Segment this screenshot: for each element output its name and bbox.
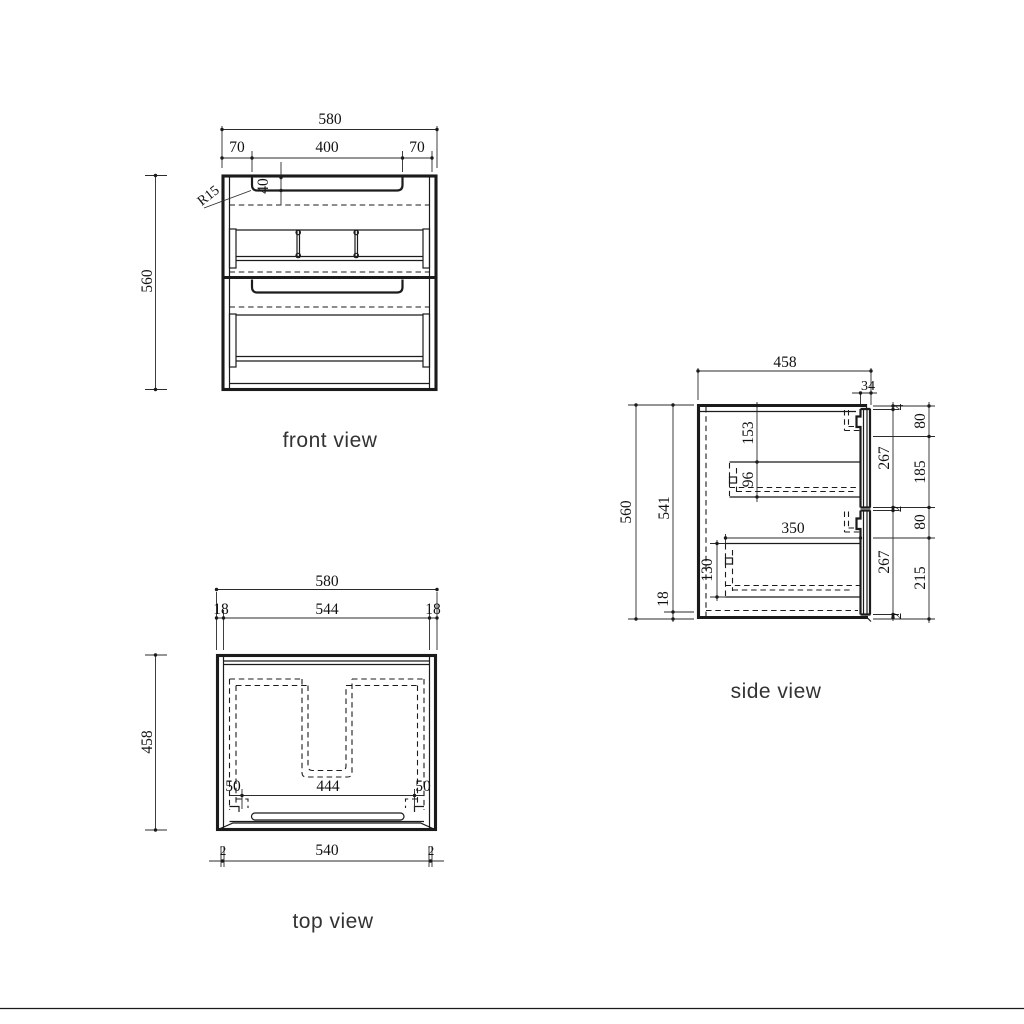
side-upper-slide-end: [730, 477, 737, 483]
front-upper-handle-recess: [252, 178, 403, 191]
technical-drawing: 580 70 400 70 560 R15 40 front view: [0, 0, 1024, 1024]
side-lower-box-solid: [726, 544, 861, 598]
dim-side-top-gap: 4: [891, 403, 906, 410]
dim-front-recess-right: 70: [409, 139, 425, 156]
dim-side-lower-box-height: 130: [699, 558, 716, 582]
front-dimension-lines: [156, 130, 438, 390]
side-carcass-outline: [697, 404, 868, 619]
side-view-label: side view: [731, 680, 822, 703]
dim-side-upper-box-height: 96: [740, 472, 757, 488]
side-view: 458 34 560 541 18 153 96 350 130 4 267 2…: [618, 354, 935, 703]
dim-side-lower-box-depth: 350: [781, 520, 805, 537]
dim-top-gap-right: 2: [428, 843, 435, 858]
top-plumbing-cutout-outer: [302, 679, 352, 777]
dim-side-top-offset: 153: [740, 421, 757, 445]
front-view-label: front view: [283, 429, 378, 452]
side-view-structure: [697, 404, 871, 622]
side-view-dimensions: 458 34 560 541 18 153 96 350 130 4 267 2…: [618, 354, 935, 623]
top-view-structure: [218, 656, 436, 830]
dim-top-inner-width: 544: [315, 601, 339, 618]
side-back-bottom-hidden: [706, 407, 858, 616]
front-lower-handle-recess: [252, 280, 403, 293]
dim-side-right-offset-4: 215: [912, 566, 929, 590]
top-cabinet-outline: [218, 656, 436, 830]
dim-side-right-offset-1: 80: [912, 413, 929, 429]
dim-top-overall-depth: 458: [139, 730, 156, 754]
front-lower-left-runner: [230, 314, 237, 367]
front-view: 580 70 400 70 560 R15 40 front view: [139, 111, 439, 452]
dim-side-overall-depth: 458: [773, 354, 797, 371]
dim-front-corner-radius: R15: [195, 183, 223, 209]
top-drawer-hidden-back: [230, 679, 425, 686]
dim-side-bottom-panel: 18: [655, 591, 672, 607]
top-runner-steps: [230, 807, 425, 813]
front-lower-drawer-rails: [236, 315, 423, 361]
dim-top-side-right: 18: [425, 601, 441, 618]
top-extension-lines: [145, 592, 437, 867]
top-view: 580 18 544 18 458 50 444 50 2 540 2 top …: [139, 573, 444, 933]
front-view-dimensions: 580 70 400 70 560 R15 40: [139, 111, 439, 391]
front-view-structure: [223, 176, 436, 390]
front-extension-lines: [145, 126, 437, 390]
dim-side-carcass-height: 541: [656, 496, 673, 519]
top-hidden-steps: [236, 799, 418, 808]
drawing-sheet: 580 70 400 70 560 R15 40 front view: [0, 0, 1024, 1024]
dim-top-cutout-width: 444: [316, 778, 340, 795]
dim-front-recess-depth: 40: [255, 178, 272, 194]
side-lower-box-hidden: [726, 544, 861, 596]
front-cabinet-outline: [223, 176, 436, 390]
dim-front-overall-width: 580: [318, 111, 342, 128]
dim-top-overall-width: 580: [315, 573, 339, 590]
dim-top-gap-left: 2: [220, 843, 227, 858]
front-slide-brackets: [297, 230, 358, 258]
dim-top-side-left: 18: [213, 601, 229, 618]
top-plumbing-cutout-inner: [308, 686, 346, 771]
side-lower-front-edges: [864, 511, 868, 615]
front-upper-drawer-rails: [236, 230, 423, 261]
dim-side-overall-height: 560: [618, 500, 635, 524]
front-upper-right-runner: [423, 229, 430, 268]
dim-side-right-offset-2: 185: [912, 460, 929, 484]
dim-side-lower-front-height: 267: [876, 550, 893, 574]
dim-top-cutout-left: 50: [225, 778, 241, 795]
dim-front-overall-height: 560: [139, 269, 156, 293]
side-lower-slide-end: [726, 558, 733, 564]
dim-front-recess-left: 70: [229, 139, 245, 156]
dim-top-front-width: 540: [315, 842, 339, 859]
top-handle-recess-profile: [252, 813, 405, 820]
side-carcass-details: [700, 404, 871, 622]
front-dimension-dots: [154, 128, 439, 391]
dim-side-bottom-gap: 2: [889, 613, 904, 620]
top-cabinet-inner-walls: [224, 657, 430, 830]
top-view-label: top view: [292, 910, 373, 933]
dim-side-right-offset-3: 80: [912, 514, 929, 530]
dim-front-recess-width: 400: [315, 139, 339, 156]
dim-side-upper-front-height: 267: [876, 446, 893, 470]
dim-side-mid-gap: 2: [889, 506, 904, 513]
front-upper-left-runner: [230, 229, 237, 268]
side-upper-front-edges: [864, 410, 868, 508]
dim-top-cutout-right: 50: [415, 778, 431, 795]
front-lower-right-runner: [423, 314, 430, 367]
dim-side-front-thickness: 34: [861, 379, 875, 394]
front-slide-screws: [296, 230, 358, 257]
